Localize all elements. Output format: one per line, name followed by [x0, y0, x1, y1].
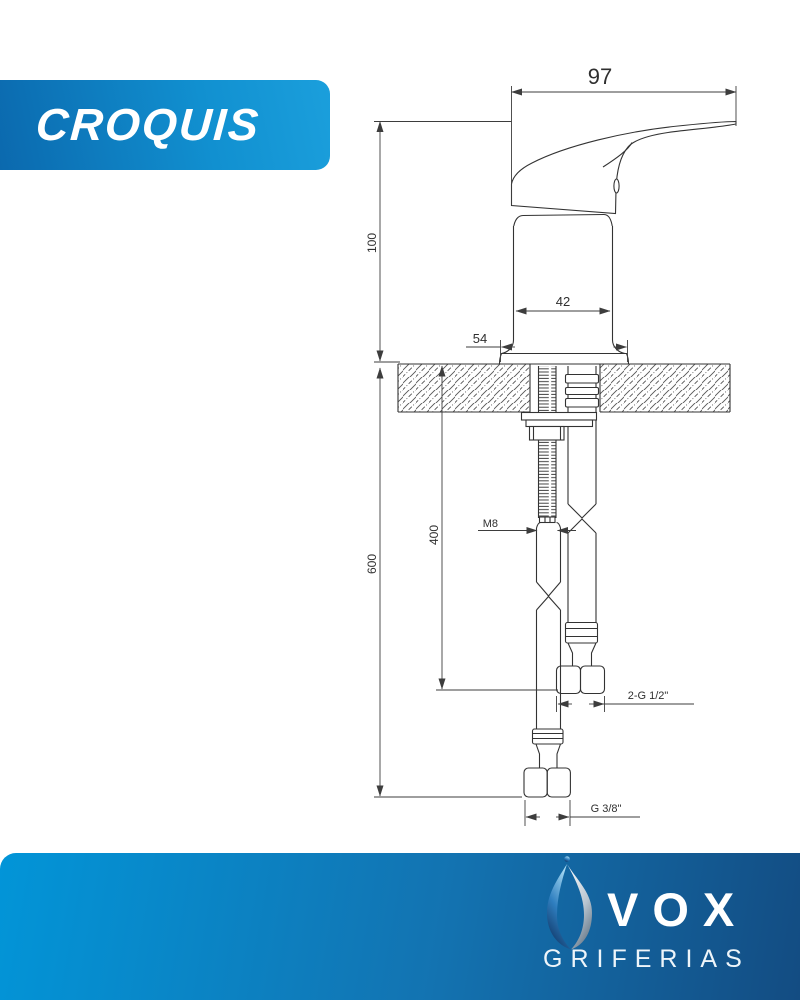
lever-handle	[512, 122, 737, 214]
croquis-banner: CROQUIS	[0, 80, 330, 170]
dimension-base-width: 54	[473, 331, 487, 346]
dimension-hose-thread: 2-G 1/2"	[628, 690, 669, 702]
base-escutcheon	[500, 354, 629, 365]
dimension-stud-thread: M8	[483, 518, 498, 530]
dimension-body-height: 100	[365, 233, 379, 253]
dimension-cartridge-width: 42	[556, 294, 570, 309]
brand-tagline: GRIFERIAS	[543, 947, 750, 972]
mounting-stud	[539, 366, 557, 523]
hose-center	[524, 523, 570, 798]
mounting-hardware	[522, 413, 597, 441]
dimension-total-height: 600	[365, 554, 379, 574]
dimension-bottom-thread: G 3/8"	[591, 803, 622, 815]
banner-title: CROQUIS	[34, 99, 262, 151]
faucet-body	[500, 122, 737, 365]
body-cylinder	[502, 226, 626, 354]
countertop-section	[398, 364, 730, 412]
dimension-hose-length: 400	[427, 525, 441, 545]
brand-name: VOX	[607, 886, 748, 933]
croquis-sheet: { "banner": { "title": "CROQUIS" }, "dra…	[0, 0, 800, 1000]
water-drop-icon	[540, 855, 600, 951]
footer-panel: VOX GRIFERIAS	[0, 853, 800, 1000]
cartridge-collar	[514, 215, 613, 229]
dimension-handle-length: 97	[588, 64, 612, 89]
